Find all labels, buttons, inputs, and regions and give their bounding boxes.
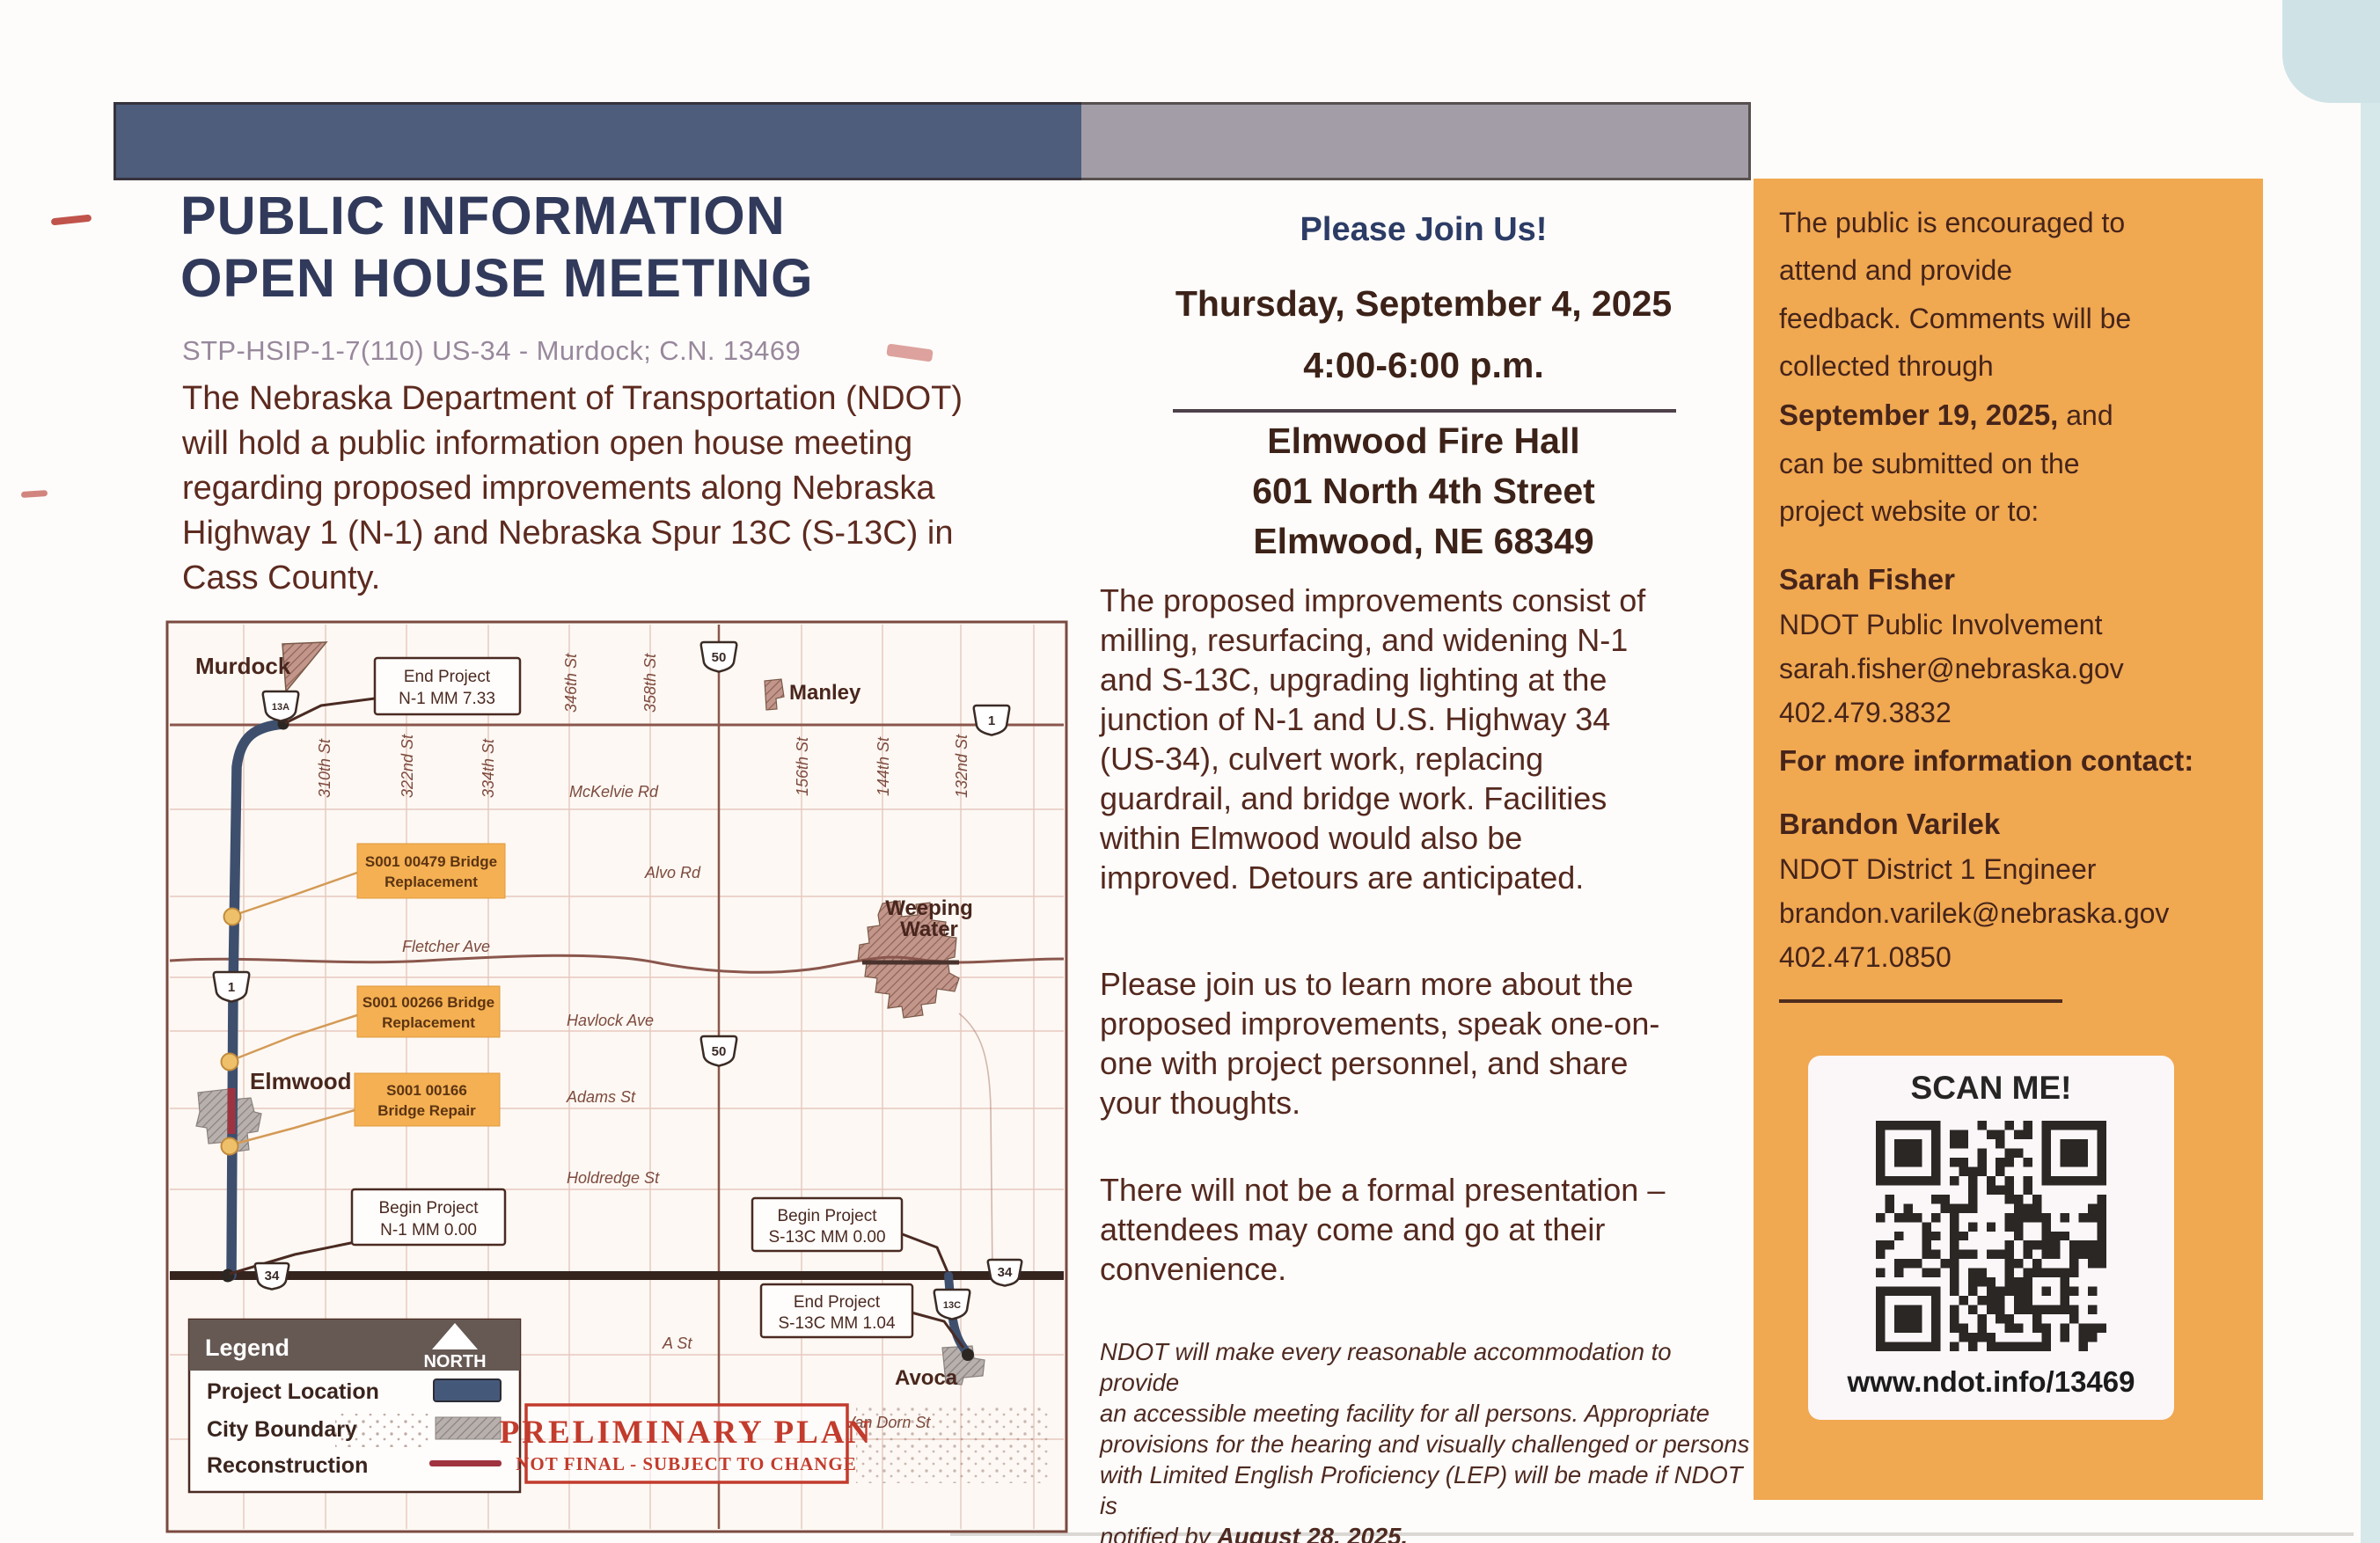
accessibility-disclaimer: NDOT will make every reasonable accommod… — [1100, 1337, 1755, 1543]
contact2-role: NDOT District 1 Engineer — [1779, 850, 2238, 889]
street-310: 310th St — [316, 738, 333, 798]
town-elmwood: Elmwood — [250, 1068, 352, 1094]
invitation-paragraph: Please join us to learn more about the p… — [1100, 964, 1760, 1123]
street-havlock: Havlock Ave — [567, 1012, 654, 1029]
venue-address: 601 North 4th Street — [1098, 471, 1749, 512]
join-heading: Please Join Us! — [1098, 211, 1749, 249]
street-a: A St — [662, 1335, 692, 1352]
legend-swatch-reconstruction — [429, 1460, 502, 1466]
street-adams: Adams St — [566, 1088, 636, 1106]
svg-text:N-1 MM 0.00: N-1 MM 0.00 — [380, 1221, 477, 1240]
project-number: STP-HSIP-1-7(110) US-34 - Murdock; C.N. … — [182, 335, 1062, 367]
contact1-phone: 402.479.3832 — [1779, 693, 2238, 733]
scan-me-label: SCAN ME! — [1808, 1070, 2174, 1107]
svg-text:50: 50 — [712, 650, 727, 665]
svg-text:Water: Water — [900, 918, 958, 941]
svg-text:Replacement: Replacement — [384, 874, 478, 890]
intro-paragraph: The Nebraska Department of Transportatio… — [182, 377, 1080, 601]
marker-1-route: 1 — [214, 972, 249, 1002]
svg-text:1: 1 — [988, 713, 995, 728]
svg-text:Bridge Repair: Bridge Repair — [377, 1102, 476, 1119]
end-n1-callout: End Project — [404, 668, 491, 686]
street-346: 346th St — [562, 653, 580, 713]
disclaimer-text: NDOT will make every reasonable accommod… — [1100, 1338, 1749, 1543]
qr-code — [1876, 1121, 2106, 1351]
contact1-role: NDOT Public Involvement — [1779, 605, 2238, 645]
svg-text:Replacement: Replacement — [382, 1014, 475, 1031]
legend-reconstruction: Reconstruction — [207, 1453, 368, 1478]
feedback-intro: The public is encouraged to attend and p… — [1779, 199, 2238, 535]
disclaimer-deadline: August 28, 2025. — [1217, 1523, 1408, 1543]
contact1-email: sarah.fisher@nebraska.gov — [1779, 649, 2238, 689]
legend-swatch-project — [434, 1379, 501, 1401]
bridge-266-label: S001 00266 Bridge — [362, 994, 494, 1011]
marker-13c: 13C — [934, 1290, 970, 1320]
svg-text:S-13C MM 0.00: S-13C MM 0.00 — [768, 1228, 885, 1247]
svg-text:50: 50 — [712, 1044, 727, 1059]
page-title: PUBLIC INFORMATION OPEN HOUSE MEETING — [180, 185, 1113, 311]
venue-name: Elmwood Fire Hall — [1098, 420, 1749, 462]
town-manley: Manley — [789, 681, 861, 705]
page-title-line2: OPEN HOUSE MEETING — [180, 247, 1113, 310]
street-132: 132nd St — [953, 734, 970, 798]
town-murdock: Murdock — [195, 653, 291, 679]
marker-50-top: 50 — [701, 642, 736, 672]
more-info-label: For more information contact: — [1779, 741, 2238, 781]
marker-34-east: 34 — [988, 1260, 1022, 1286]
street-322: 322nd St — [399, 734, 416, 798]
stamp-line1: PRELIMINARY PLAN — [500, 1415, 874, 1451]
project-url: www.ndot.info/13469 — [1808, 1365, 2174, 1399]
street-alvo: Alvo Rd — [644, 864, 701, 881]
legend-city-boundary: City Boundary — [207, 1417, 357, 1442]
end-s13c-callout: End Project — [794, 1293, 881, 1312]
marker-1-east: 1 — [974, 706, 1009, 735]
legend-project-location: Project Location — [207, 1379, 379, 1404]
street-144: 144th St — [875, 736, 892, 796]
header-bar-gray — [1081, 102, 1751, 180]
street-holdredge: Holdredge St — [567, 1169, 660, 1187]
meeting-date: Thursday, September 4, 2025 — [1098, 283, 1749, 325]
contact2-email: brandon.varilek@nebraska.gov — [1779, 894, 2238, 933]
street-fletcher: Fletcher Ave — [402, 938, 490, 955]
svg-text:13C: 13C — [943, 1300, 961, 1311]
svg-text:13A: 13A — [272, 702, 289, 713]
contact2-phone: 402.471.0850 — [1779, 938, 2238, 977]
format-paragraph: There will not be a formal presentation … — [1100, 1170, 1760, 1289]
paper-edge-right — [2361, 0, 2380, 1543]
svg-text:N-1 MM 7.33: N-1 MM 7.33 — [399, 690, 495, 708]
qr-code-matrix — [1876, 1121, 2106, 1351]
begin-n1-callout: Begin Project — [378, 1199, 479, 1218]
scan-me-card: SCAN ME! www.ndot.info/13469 — [1808, 1056, 2174, 1420]
svg-text:34: 34 — [998, 1265, 1013, 1280]
svg-text:1: 1 — [228, 980, 235, 995]
n1-begin-dot — [222, 1269, 235, 1283]
contact2-name: Brandon Varilek — [1779, 804, 2238, 845]
town-avoca: Avoca — [895, 1366, 958, 1390]
comment-deadline: September 19, 2025, — [1779, 399, 2058, 431]
north-label: NORTH — [423, 1352, 486, 1371]
street-358: 358th St — [641, 653, 659, 713]
meeting-time: 4:00-6:00 p.m. — [1098, 345, 1749, 386]
paper-corner-top-right — [2282, 0, 2380, 103]
map-legend: Legend NORTH Project Location City Bound… — [189, 1320, 520, 1492]
begin-s13c-callout: Begin Project — [777, 1207, 877, 1225]
feedback-intro-text: The public is encouraged to attend and p… — [1779, 207, 2131, 382]
legend-title: Legend — [205, 1335, 289, 1361]
svg-text:S-13C MM 1.04: S-13C MM 1.04 — [778, 1314, 895, 1333]
street-mckelvie: McKelvie Rd — [569, 783, 659, 801]
page-title-line1: PUBLIC INFORMATION — [180, 185, 1113, 247]
bridge-166-label: S001 00166 — [386, 1082, 467, 1099]
scan-artifact — [21, 490, 48, 498]
street-334: 334th St — [480, 738, 497, 798]
street-156: 156th St — [794, 736, 811, 796]
marker-13a: 13A — [263, 691, 298, 721]
bridge-479-label: S001 00479 Bridge — [365, 853, 497, 870]
flyer-page: PUBLIC INFORMATION OPEN HOUSE MEETING ST… — [0, 0, 2380, 1543]
scan-artifact — [51, 215, 92, 226]
s13c-end-dot — [962, 1349, 974, 1361]
legend-speckle — [335, 1414, 428, 1447]
venue-city: Elmwood, NE 68349 — [1098, 521, 1749, 562]
legend-swatch-boundary — [436, 1417, 501, 1439]
project-map: S001 00479 Bridge Replacement S001 00266… — [163, 618, 1071, 1536]
stamp-speckle — [856, 1408, 1051, 1483]
stamp-line2: NOT FINAL - SUBJECT TO CHANGE — [516, 1453, 856, 1474]
preliminary-stamp: PRELIMINARY PLAN NOT FINAL - SUBJECT TO … — [500, 1405, 1051, 1483]
contact1-name: Sarah Fisher — [1779, 559, 2238, 600]
header-bar-navy — [114, 102, 1084, 180]
marker-50-mid: 50 — [701, 1036, 736, 1066]
contact-divider — [1779, 999, 2062, 1003]
svg-text:34: 34 — [265, 1269, 280, 1283]
marker-34-west: 34 — [255, 1263, 289, 1290]
town-weeping-water: Weeping — [885, 896, 973, 920]
meeting-divider — [1173, 409, 1676, 413]
improvements-paragraph: The proposed improvements consist of mil… — [1100, 581, 1760, 897]
